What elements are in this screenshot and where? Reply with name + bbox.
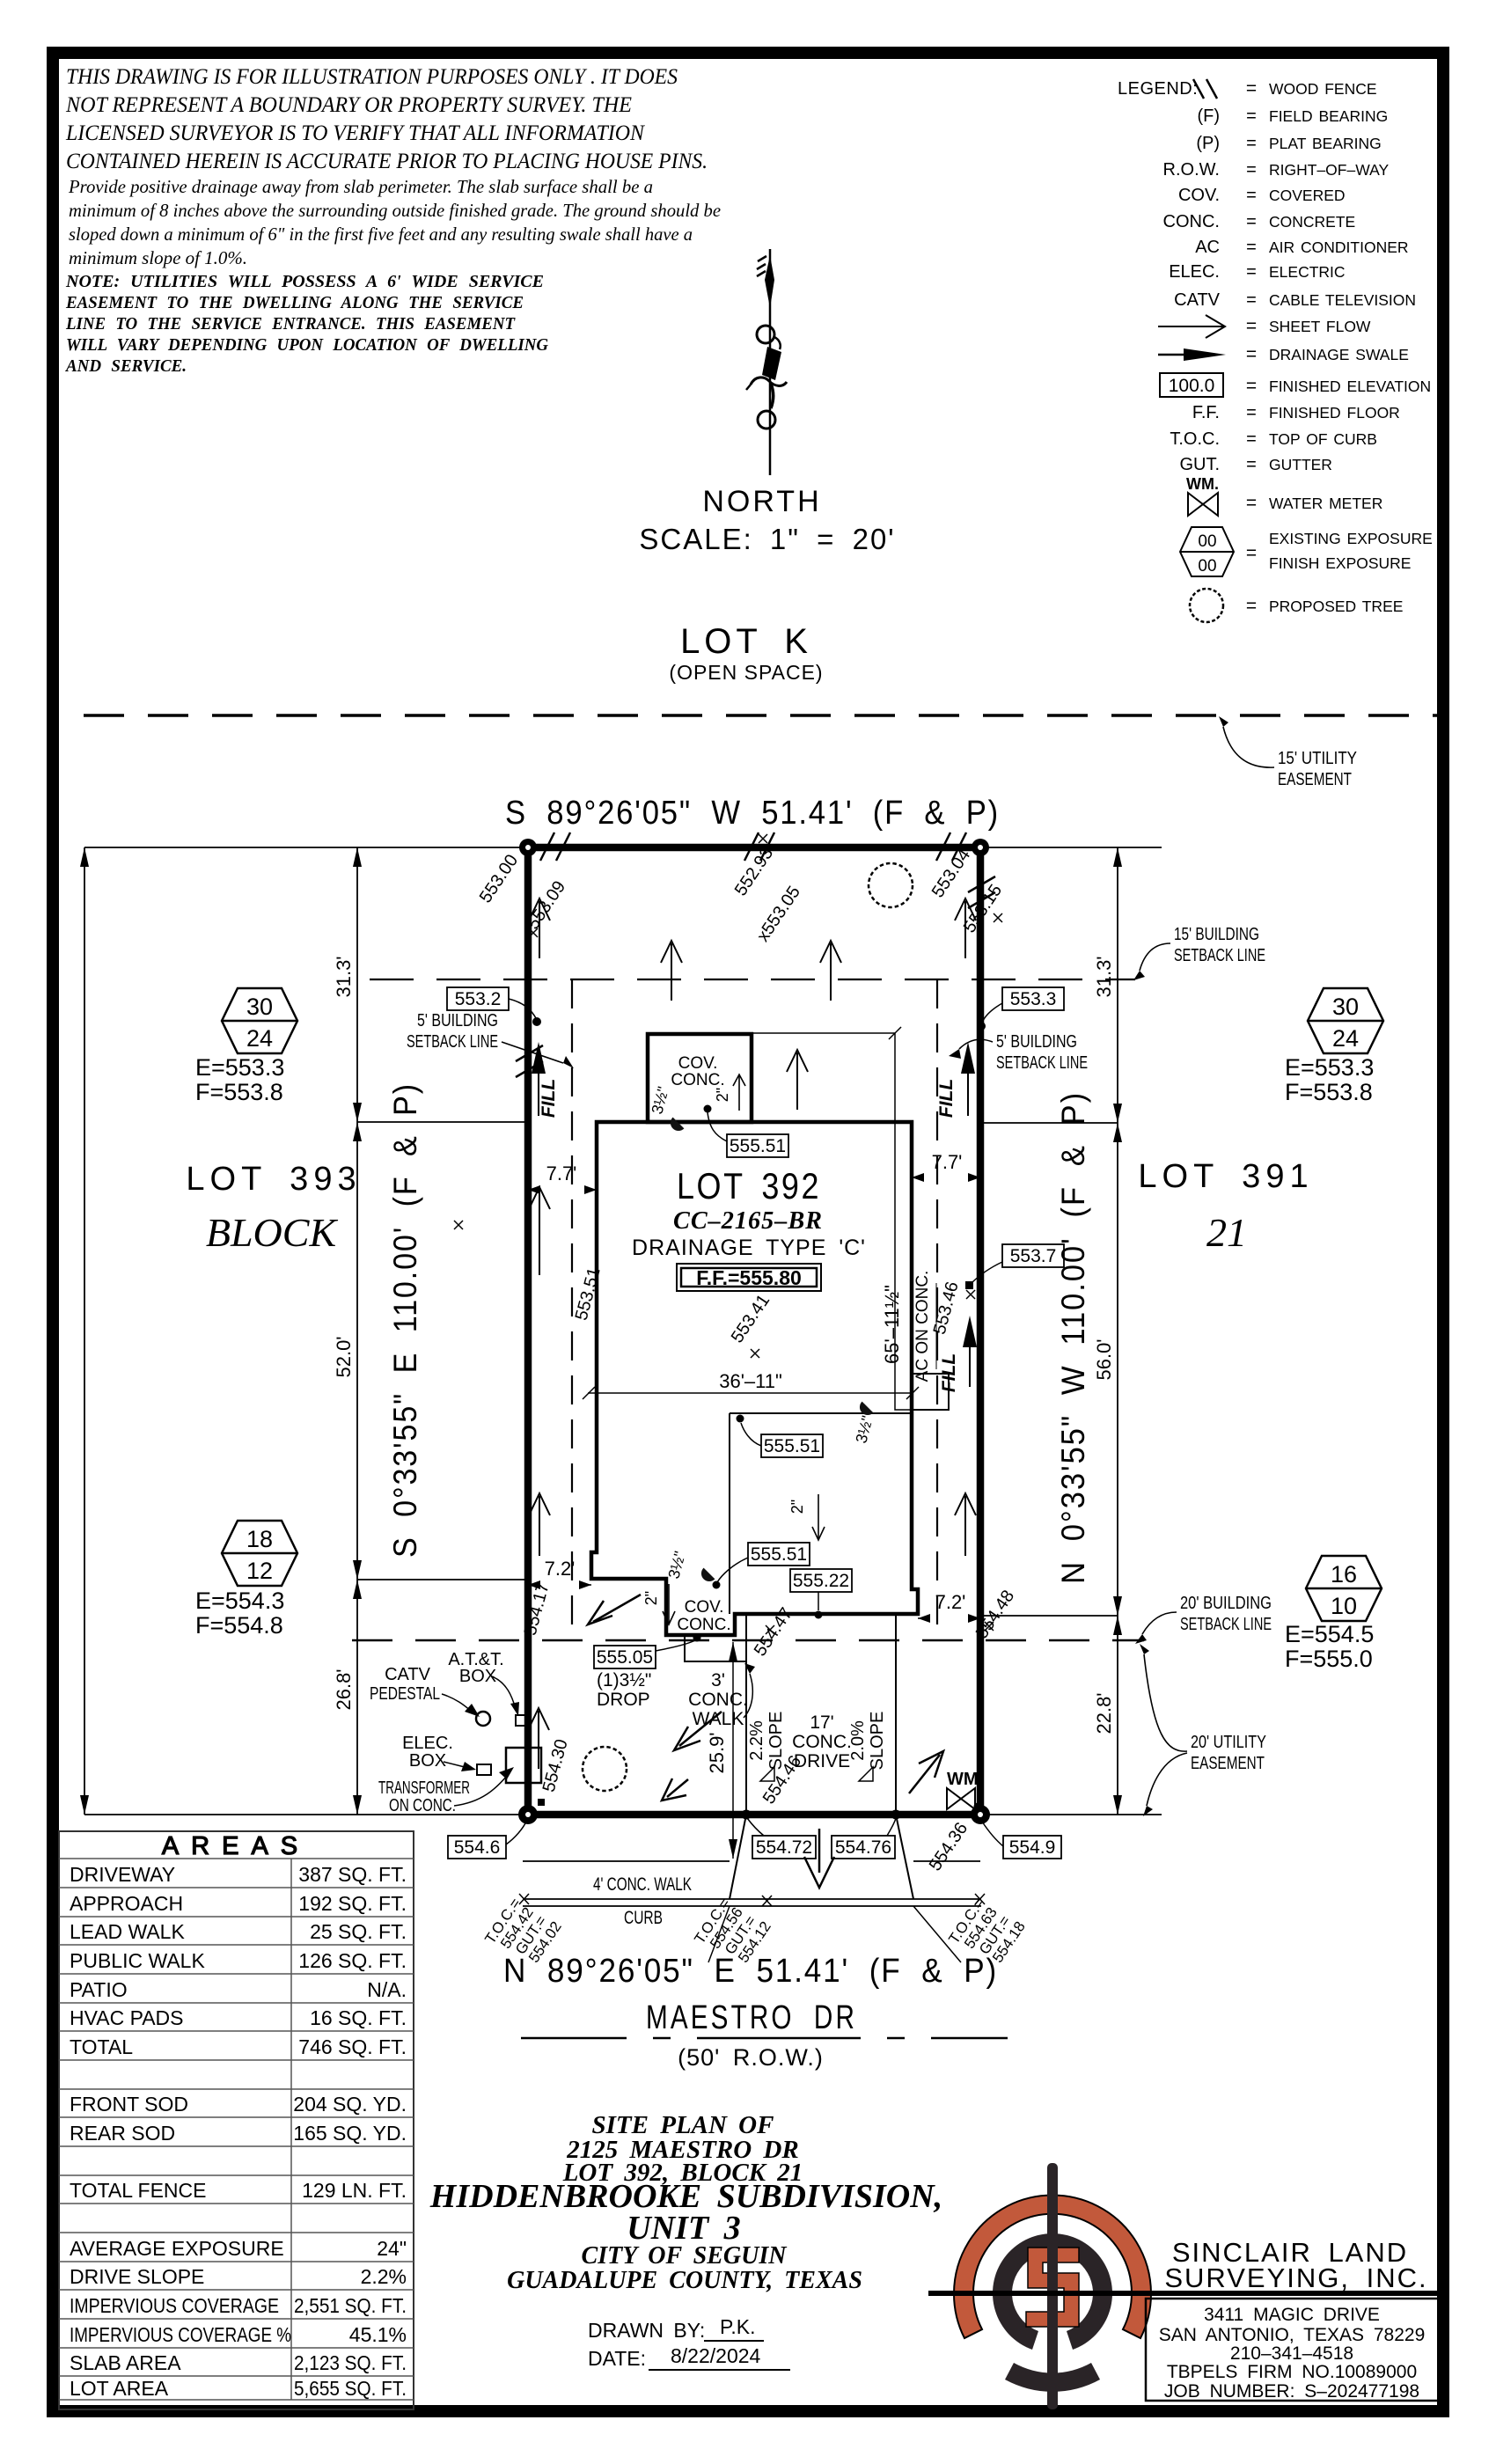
svg-text:DROP: DROP [597,1690,650,1710]
svg-text:165 SQ. YD.: 165 SQ. YD. [293,2122,407,2145]
svg-text:2.2%: 2.2% [361,2265,407,2288]
svg-text:2,123 SQ. FT.: 2,123 SQ. FT. [294,2351,407,2374]
svg-text:20' UTILITY: 20' UTILITY [1191,1733,1266,1752]
svg-text:DRAINAGE SWALE: DRAINAGE SWALE [1269,346,1409,363]
svg-text:ON CONC.: ON CONC. [389,1796,456,1815]
svg-text:AREAS: AREAS [162,1832,310,1860]
svg-text:WM.: WM. [947,1770,983,1789]
svg-text:P.K.: P.K. [720,2315,756,2338]
svg-text:24": 24" [377,2237,407,2260]
svg-text:30: 30 [1332,994,1359,1020]
svg-text:RIGHT–OF–WAY: RIGHT–OF–WAY [1269,161,1389,179]
svg-text:UNIT 3: UNIT 3 [627,2210,740,2247]
svg-text:555.51: 555.51 [764,1436,820,1456]
svg-text:65'–11½": 65'–11½" [881,1285,903,1364]
svg-text:DRIVEWAY: DRIVEWAY [70,1863,175,1886]
svg-text:15' UTILITY: 15' UTILITY [1278,749,1357,768]
svg-text:AC ON CONC.: AC ON CONC. [913,1271,932,1382]
svg-text:30: 30 [246,994,273,1020]
svg-text:F.F.: F.F. [1192,403,1220,422]
svg-text:AVERAGE EXPOSURE: AVERAGE EXPOSURE [70,2237,284,2260]
svg-text:100.0: 100.0 [1169,376,1215,396]
svg-text:24: 24 [1332,1025,1359,1052]
svg-text:FINISHED FLOOR: FINISHED FLOOR [1269,404,1400,422]
svg-text:E=554.3: E=554.3 [195,1588,284,1614]
svg-text:WATER METER: WATER METER [1269,495,1382,512]
svg-text:=: = [1246,455,1257,474]
svg-text:SURVEYING, INC.: SURVEYING, INC. [1164,2262,1427,2293]
svg-text:SETBACK LINE: SETBACK LINE [1174,946,1265,965]
svg-text:CURB: CURB [624,1908,663,1928]
svg-text:F=553.8: F=553.8 [1285,1079,1373,1105]
svg-text:LINE TO THE SERVICE ENTRANCE.: LINE TO THE SERVICE ENTRANCE. THIS EASEM… [65,314,516,334]
svg-text:2": 2" [714,1088,731,1102]
svg-text:CABLE TELEVISION: CABLE TELEVISION [1269,291,1416,309]
svg-text:EASEMENT TO THE DWELLING ALONG: EASEMENT TO THE DWELLING ALONG THE SERVI… [65,293,524,312]
svg-text:10: 10 [1331,1593,1357,1619]
svg-text:PROPOSED TREE: PROPOSED TREE [1269,598,1403,615]
svg-text:16 SQ. FT.: 16 SQ. FT. [310,2006,407,2029]
svg-text:LEAD WALK: LEAD WALK [70,1920,185,1943]
svg-text:LOT 393: LOT 393 [186,1161,361,1198]
svg-text:52.0': 52.0' [333,1336,355,1377]
svg-text:ELEC.: ELEC. [1169,262,1220,282]
svg-text:LICENSED SURVEYOR IS TO VERIFY: LICENSED SURVEYOR IS TO VERIFY THAT ALL … [65,120,646,145]
svg-text:N/A.: N/A. [367,1978,407,2001]
svg-text:25.9': 25.9' [706,1732,728,1773]
svg-text:AIR CONDITIONER: AIR CONDITIONER [1269,238,1409,256]
svg-text:=: = [1246,376,1257,396]
svg-text:555.51: 555.51 [751,1544,807,1565]
svg-text:GUT.: GUT. [1179,455,1220,474]
svg-text:Provide positive drainage away: Provide positive drainage away from slab… [68,176,653,197]
svg-text:THIS DRAWING IS FOR ILLUSTRATI: THIS DRAWING IS FOR ILLUSTRATION PURPOSE… [66,63,678,89]
svg-text:=: = [1246,290,1257,310]
svg-text:CONC.: CONC. [792,1732,852,1752]
svg-text:FIELD BEARING: FIELD BEARING [1269,107,1388,125]
svg-text:minimum of 8 inches above the: minimum of 8 inches above the surroundin… [69,200,721,221]
svg-text:N 89°26'05" E 51.41' (F & P): N 89°26'05" E 51.41' (F & P) [503,1953,998,1990]
svg-text:SLOPE: SLOPE [766,1712,786,1771]
svg-text:SETBACK LINE: SETBACK LINE [996,1053,1088,1073]
svg-text:BOX: BOX [459,1667,496,1686]
svg-text:SHEET FLOW: SHEET FLOW [1269,318,1371,335]
svg-text:F=553.8: F=553.8 [195,1079,283,1105]
svg-text:REAR SOD: REAR SOD [70,2122,175,2145]
svg-text:21: 21 [1206,1210,1247,1255]
svg-text:FINISH EXPOSURE: FINISH EXPOSURE [1269,554,1411,572]
svg-text:COV.: COV. [1178,186,1220,205]
svg-text:TRANSFORMER: TRANSFORMER [378,1778,470,1798]
svg-text:FILL: FILL [936,1079,957,1118]
svg-text:LEGEND:: LEGEND: [1118,79,1198,99]
svg-text:126 SQ. FT.: 126 SQ. FT. [298,1949,407,1972]
svg-text:7.2': 7.2' [545,1558,576,1580]
svg-text:E=553.3: E=553.3 [195,1054,284,1081]
svg-text:=: = [1246,186,1257,205]
svg-text:DATE:: DATE: [588,2347,646,2370]
svg-text:17': 17' [810,1712,833,1733]
svg-text:553.7: 553.7 [1010,1246,1057,1266]
svg-text:553.2: 553.2 [455,989,502,1009]
svg-text:IMPERVIOUS COVERAGE %: IMPERVIOUS COVERAGE % [70,2323,291,2346]
svg-text:NORTH: NORTH [702,485,821,518]
svg-text:555.51: 555.51 [730,1136,786,1156]
svg-text:GUADALUPE COUNTY, TEXAS: GUADALUPE COUNTY, TEXAS [507,2267,862,2294]
svg-text:TOTAL: TOTAL [70,2035,133,2058]
svg-text:3411 MAGIC DRIVE: 3411 MAGIC DRIVE [1204,2305,1380,2325]
svg-text:=: = [1246,134,1257,153]
svg-text:WALK: WALK [693,1709,744,1729]
svg-text:AC: AC [1195,238,1220,257]
svg-text:2.0%: 2.0% [848,1720,868,1761]
svg-text:S 0°33'55" E 110.00' (F & P): S 0°33'55" E 110.00' (F & P) [387,1082,423,1558]
svg-text:CONC.: CONC. [1163,212,1220,231]
svg-text:DRAWN BY:: DRAWN BY: [588,2319,705,2342]
svg-text:210–341–4518: 210–341–4518 [1230,2343,1353,2364]
svg-text:=: = [1246,493,1257,513]
svg-text:SAN ANTONIO, TEXAS 78229: SAN ANTONIO, TEXAS 78229 [1159,2325,1426,2345]
svg-text:22.8': 22.8' [1093,1692,1115,1734]
svg-text:GUTTER: GUTTER [1269,456,1332,473]
svg-text:EASEMENT: EASEMENT [1191,1754,1265,1773]
svg-text:=: = [1246,403,1257,422]
svg-text:PLAT BEARING: PLAT BEARING [1269,135,1382,152]
svg-text:TOP OF CURB: TOP OF CURB [1269,430,1377,448]
svg-text:WOOD FENCE: WOOD FENCE [1269,80,1377,98]
svg-text:COVERED: COVERED [1269,187,1346,204]
svg-text:CATV: CATV [385,1665,431,1684]
svg-text:(1)3½": (1)3½" [597,1670,651,1690]
svg-text:FRONT SOD: FRONT SOD [70,2093,188,2116]
svg-text:F.F.=555.80: F.F.=555.80 [696,1266,802,1289]
svg-text:5' BUILDING: 5' BUILDING [996,1032,1077,1052]
svg-text:DRIVE: DRIVE [794,1751,850,1771]
svg-text:5' BUILDING: 5' BUILDING [417,1011,498,1030]
svg-text:SETBACK LINE: SETBACK LINE [407,1032,498,1052]
svg-text:12: 12 [246,1558,273,1584]
svg-text:PATIO: PATIO [70,1978,128,2001]
svg-text:FILL: FILL [539,1079,559,1118]
svg-text:555.22: 555.22 [793,1571,849,1591]
svg-text:2": 2" [788,1500,806,1514]
svg-text:(OPEN SPACE): (OPEN SPACE) [669,661,823,684]
svg-text:(P): (P) [1196,134,1220,153]
svg-text:31.3': 31.3' [333,956,355,997]
svg-text:F=555.0: F=555.0 [1285,1646,1373,1672]
svg-text:ELECTRIC: ELECTRIC [1269,263,1346,281]
svg-text:2,551 SQ. FT.: 2,551 SQ. FT. [294,2294,407,2317]
svg-text:56.0': 56.0' [1093,1338,1115,1380]
svg-text:COV.: COV. [685,1598,724,1617]
svg-text:=: = [1246,160,1257,180]
svg-text:CONC.: CONC. [671,1071,724,1089]
svg-text:=: = [1246,212,1257,231]
svg-text:DRAINAGE TYPE 'C': DRAINAGE TYPE 'C' [632,1236,866,1260]
svg-text:4' CONC. WALK: 4' CONC. WALK [593,1874,692,1895]
svg-text:387 SQ. FT.: 387 SQ. FT. [298,1863,407,1886]
svg-text:R.O.W.: R.O.W. [1163,160,1220,180]
svg-text:APPROACH: APPROACH [70,1892,183,1915]
svg-text:E=553.3: E=553.3 [1285,1054,1374,1081]
svg-text:BOX: BOX [409,1751,446,1771]
svg-text:BLOCK: BLOCK [206,1210,339,1255]
svg-text:sloped down a minimum of 6" in: sloped down a minimum of 6" in the first… [69,224,693,245]
svg-text:PEDESTAL: PEDESTAL [370,1684,440,1704]
svg-text:EASEMENT: EASEMENT [1278,770,1352,789]
svg-text:24: 24 [246,1025,273,1052]
svg-text:555.05: 555.05 [597,1647,653,1668]
svg-text:PUBLIC WALK: PUBLIC WALK [70,1949,205,1972]
svg-text:minimum slope of 1.0%.: minimum slope of 1.0%. [69,247,247,268]
svg-text:CONC.: CONC. [688,1690,748,1710]
svg-text:36'–11": 36'–11" [719,1370,782,1392]
svg-text:CONTAINED HEREIN IS ACCURATE P: CONTAINED HEREIN IS ACCURATE PRIOR TO PL… [66,148,708,173]
svg-text:00: 00 [1198,557,1216,576]
svg-text:SLOPE: SLOPE [868,1712,887,1771]
svg-text:S 89°26'05" W 51.41' (F & P): S 89°26'05" W 51.41' (F & P) [505,795,1000,832]
svg-text:T.O.C.: T.O.C. [1170,429,1220,449]
svg-text:554.72: 554.72 [756,1837,812,1858]
svg-text:(F): (F) [1197,106,1220,126]
svg-text:20' BUILDING: 20' BUILDING [1180,1594,1272,1613]
svg-text:HVAC PADS: HVAC PADS [70,2006,184,2029]
svg-text:SLAB AREA: SLAB AREA [70,2351,181,2374]
svg-text:8/22/2024: 8/22/2024 [671,2344,761,2367]
svg-text:45.1%: 45.1% [349,2323,407,2346]
svg-text:=: = [1246,106,1257,126]
svg-text:=: = [1246,596,1257,616]
svg-text:553.3: 553.3 [1010,989,1057,1009]
svg-text:CONCRETE: CONCRETE [1269,213,1355,231]
svg-text:CITY OF SEGUIN: CITY OF SEGUIN [582,2242,788,2270]
svg-text:EXISTING EXPOSURE: EXISTING EXPOSURE [1269,530,1433,547]
svg-text:=: = [1246,238,1257,257]
svg-text:WM.: WM. [1186,475,1219,493]
svg-text:=: = [1246,543,1257,563]
svg-text:25 SQ. FT.: 25 SQ. FT. [310,1920,407,1943]
svg-text:AND SERVICE.: AND SERVICE. [64,356,187,376]
svg-text:CONC.: CONC. [677,1616,730,1634]
svg-text:F=554.8: F=554.8 [195,1612,283,1639]
svg-text:3': 3' [711,1670,725,1690]
svg-text:7.7': 7.7' [932,1151,963,1173]
svg-text:NOT REPRESENT A BOUNDARY OR PR: NOT REPRESENT A BOUNDARY OR PROPERTY SUR… [65,92,632,117]
svg-text:LOT 391: LOT 391 [1138,1158,1313,1195]
svg-text:CATV: CATV [1174,290,1221,310]
svg-text:JOB NUMBER: S–202477198: JOB NUMBER: S–202477198 [1164,2381,1419,2402]
svg-text:554.9: 554.9 [1009,1837,1056,1858]
svg-text:=: = [1246,316,1257,336]
svg-text:N 0°33'55" W 110.00' (F & P): N 0°33'55" W 110.00' (F & P) [1055,1091,1091,1584]
svg-text:FINISHED ELEVATION: FINISHED ELEVATION [1269,378,1431,395]
svg-text:15' BUILDING: 15' BUILDING [1174,925,1259,944]
svg-text:129 LN. FT.: 129 LN. FT. [302,2179,407,2202]
svg-text:=: = [1246,344,1257,364]
svg-text:26.8': 26.8' [333,1668,355,1710]
svg-text:LOT AREA: LOT AREA [70,2377,169,2400]
svg-text:SCALE: 1" = 20': SCALE: 1" = 20' [639,523,895,555]
svg-text:LOT 392: LOT 392 [677,1165,821,1206]
svg-text:7.2': 7.2' [935,1591,966,1613]
svg-text:ELEC.: ELEC. [402,1734,453,1753]
svg-text:554.76: 554.76 [835,1837,891,1858]
svg-text:2.2%: 2.2% [747,1720,766,1761]
svg-text:SETBACK LINE: SETBACK LINE [1180,1615,1272,1634]
svg-text:=: = [1246,262,1257,282]
svg-text:IMPERVIOUS COVERAGE: IMPERVIOUS COVERAGE [70,2294,279,2317]
svg-text:31.3': 31.3' [1093,956,1115,997]
svg-text:COV.: COV. [678,1054,718,1073]
svg-text:554.6: 554.6 [454,1837,501,1858]
svg-text:192 SQ. FT.: 192 SQ. FT. [298,1892,407,1915]
svg-text:00: 00 [1198,532,1216,551]
svg-text:E=554.5: E=554.5 [1285,1621,1374,1647]
svg-text:TOTAL FENCE: TOTAL FENCE [70,2179,207,2202]
svg-text:TBPELS FIRM NO.10089000: TBPELS FIRM NO.10089000 [1167,2362,1417,2382]
svg-text:FILL: FILL [939,1353,959,1392]
svg-text:7.7': 7.7' [546,1162,577,1184]
svg-text:=: = [1246,429,1257,449]
svg-text:=: = [1246,78,1257,99]
svg-text:CC–2165–BR: CC–2165–BR [673,1206,823,1235]
svg-text:204 SQ. YD.: 204 SQ. YD. [293,2093,407,2116]
svg-text:5,655 SQ. FT.: 5,655 SQ. FT. [294,2377,407,2400]
svg-text:2": 2" [642,1591,660,1605]
svg-text:(50' R.O.W.): (50' R.O.W.) [678,2044,824,2071]
svg-text:NOTE: UTILITIES WILL POSSESS A: NOTE: UTILITIES WILL POSSESS A 6' WIDE S… [65,272,544,291]
svg-text:MAESTRO DR: MAESTRO DR [646,1999,857,2036]
svg-text:LOT K: LOT K [680,622,812,661]
svg-text:WILL VARY DEPENDING UPON LOCAT: WILL VARY DEPENDING UPON LOCATION OF DWE… [66,335,549,355]
svg-text:18: 18 [246,1526,273,1552]
svg-text:DRIVE SLOPE: DRIVE SLOPE [70,2265,204,2288]
svg-text:746 SQ. FT.: 746 SQ. FT. [298,2035,407,2058]
svg-text:16: 16 [1331,1561,1357,1588]
